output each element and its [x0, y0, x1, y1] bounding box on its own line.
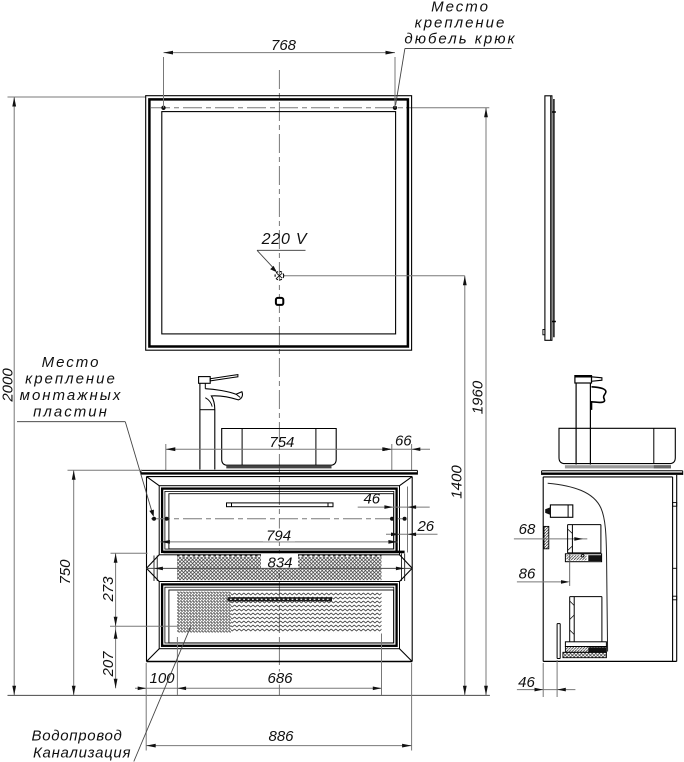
svg-text:794: 794: [266, 527, 291, 544]
svg-text:273: 273: [100, 576, 117, 603]
svg-text:754: 754: [269, 434, 294, 451]
svg-text:Место: Место: [42, 354, 101, 371]
svg-text:46: 46: [518, 674, 535, 691]
svg-text:пластин: пластин: [33, 404, 109, 421]
svg-text:крепление: крепление: [415, 15, 507, 32]
svg-text:86: 86: [519, 566, 536, 583]
svg-text:66: 66: [395, 433, 412, 450]
svg-text:834: 834: [267, 554, 292, 571]
svg-text:1960: 1960: [470, 380, 487, 414]
svg-text:68: 68: [519, 521, 536, 538]
svg-text:220 V: 220 V: [261, 231, 308, 248]
svg-text:750: 750: [57, 559, 74, 585]
svg-text:крепление: крепление: [25, 371, 117, 388]
svg-text:207: 207: [100, 651, 117, 678]
svg-text:дюбель крюк: дюбель крюк: [404, 31, 516, 48]
svg-text:Канализация: Канализация: [33, 744, 131, 761]
svg-text:Водопровод: Водопровод: [32, 727, 123, 744]
svg-text:2000: 2000: [0, 368, 16, 403]
svg-text:Место: Место: [431, 0, 490, 16]
svg-text:686: 686: [267, 670, 293, 687]
svg-text:886: 886: [268, 728, 294, 745]
svg-text:46: 46: [363, 491, 380, 508]
svg-text:26: 26: [416, 518, 434, 535]
svg-text:монтажных: монтажных: [20, 387, 123, 404]
svg-text:768: 768: [271, 37, 297, 54]
svg-text:1400: 1400: [449, 465, 466, 499]
